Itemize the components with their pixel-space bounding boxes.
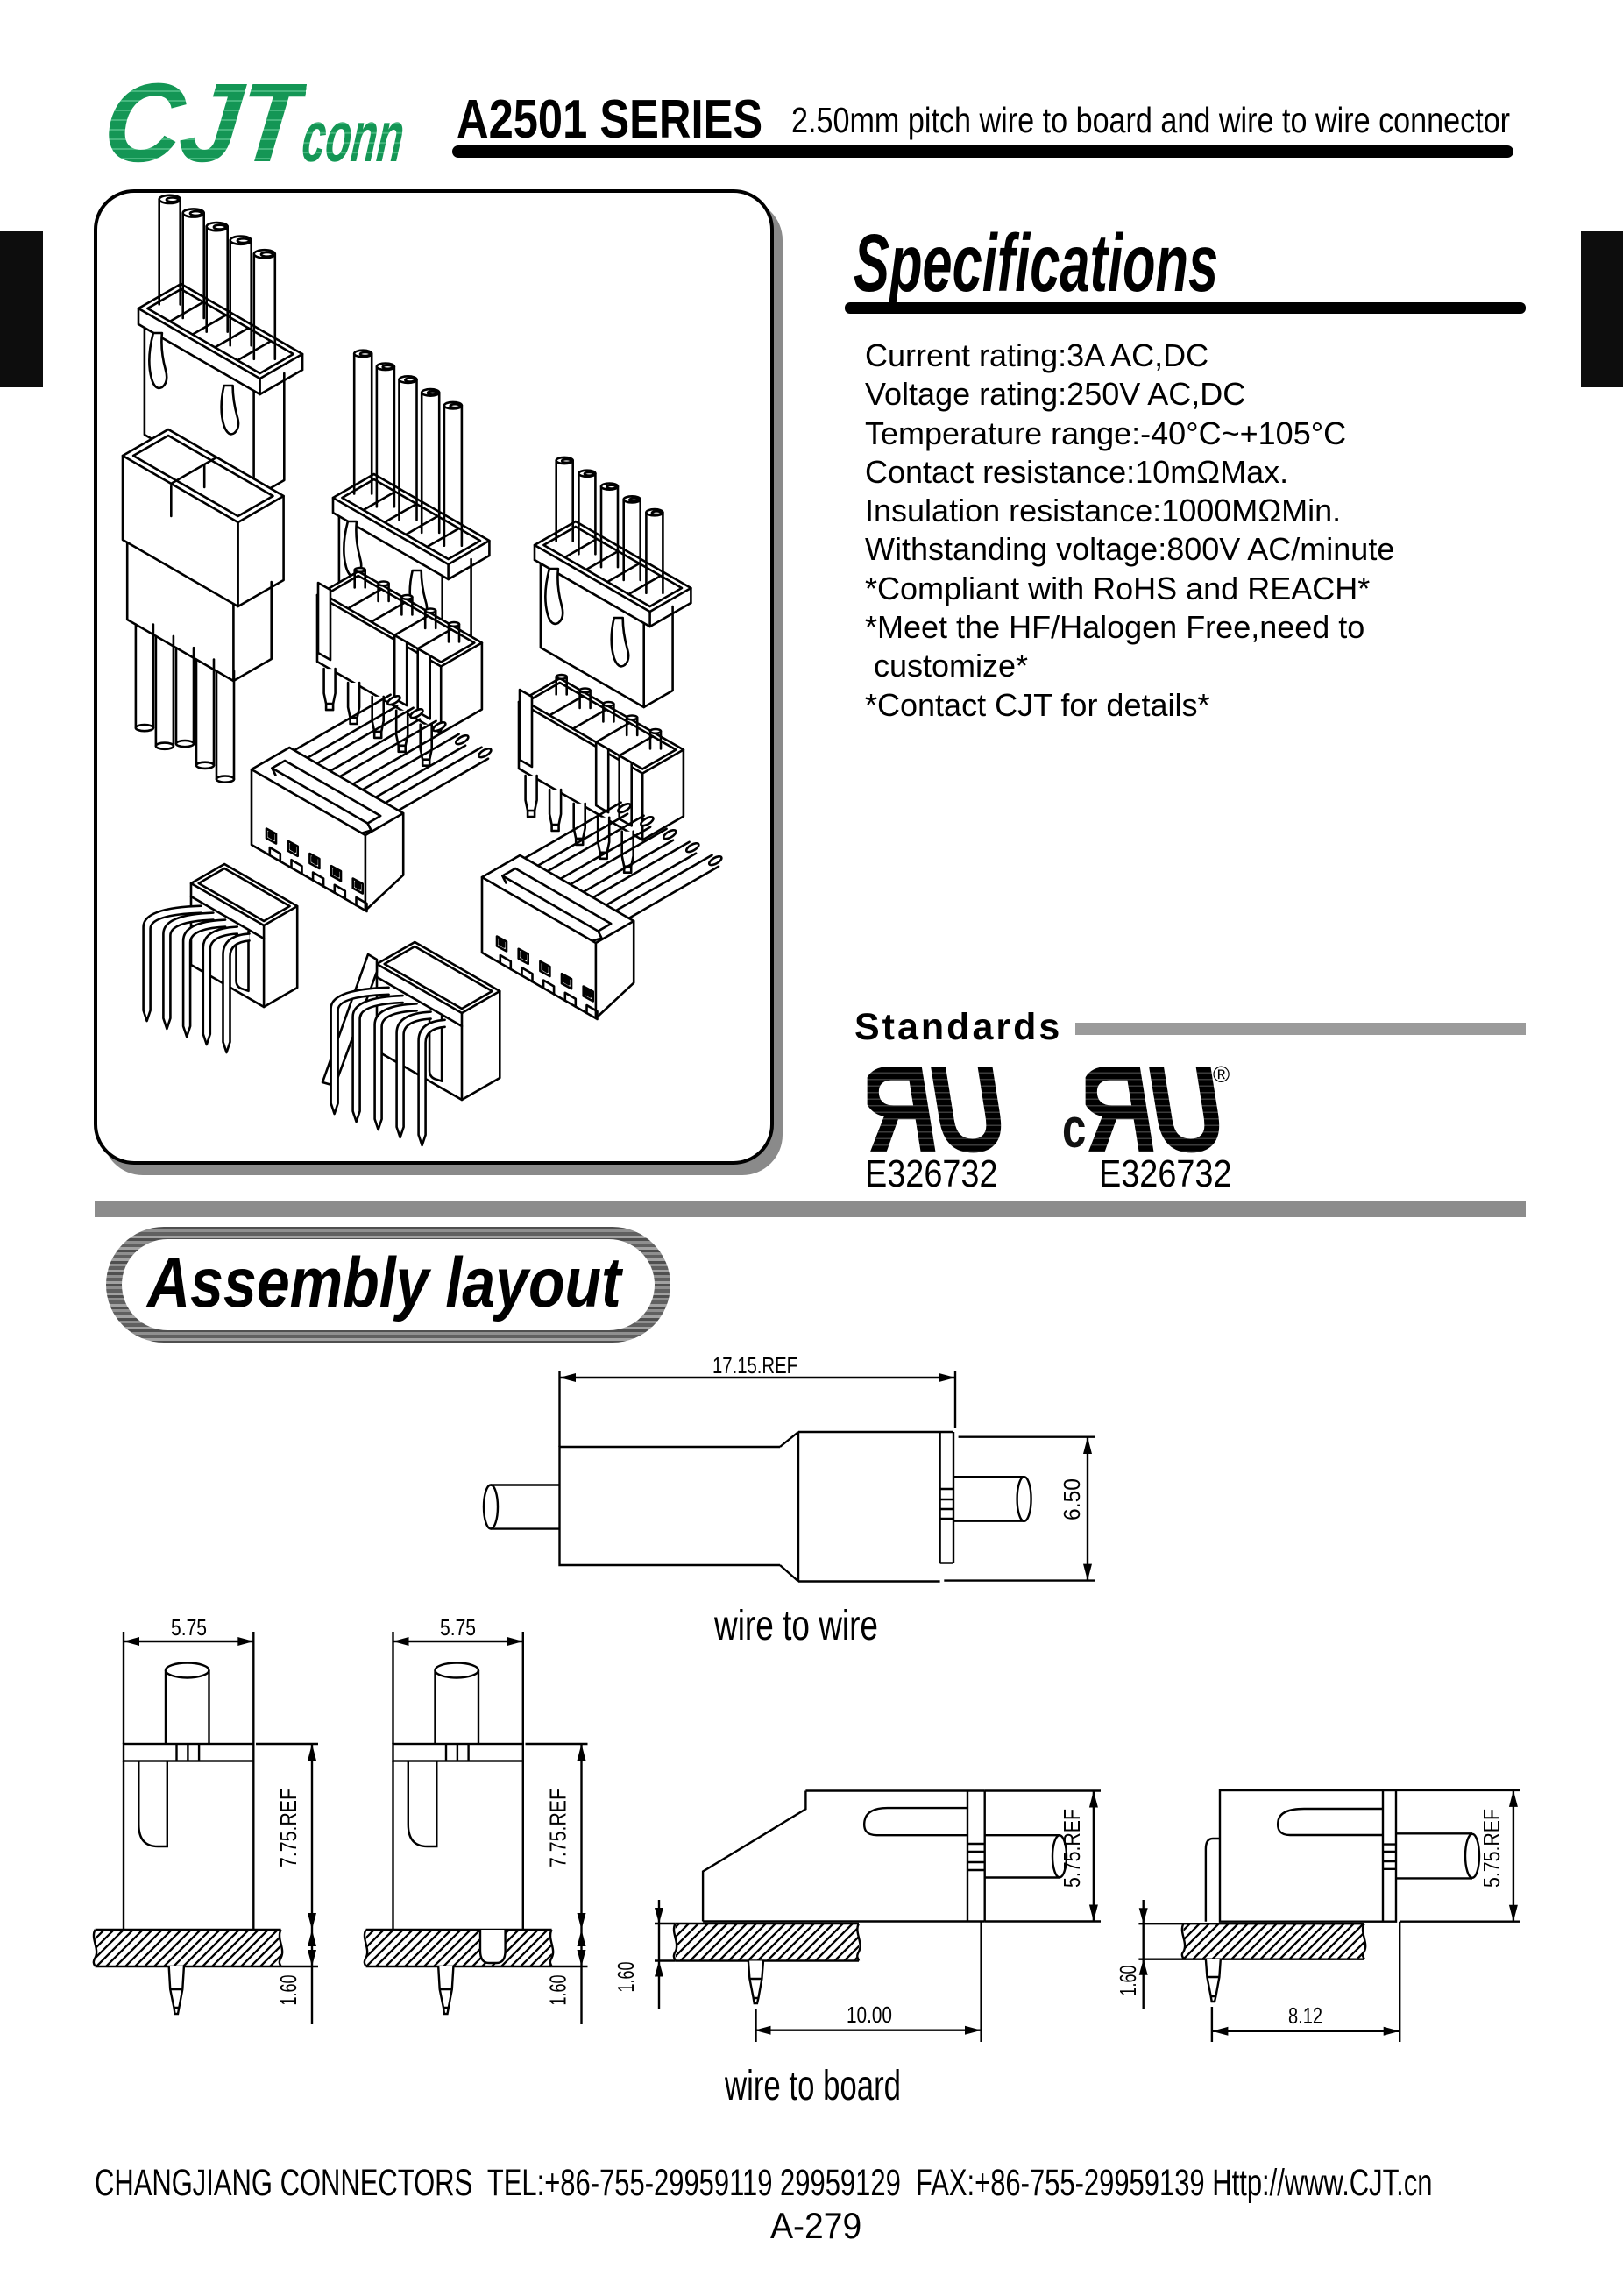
svg-text:7.75.REF: 7.75.REF — [545, 1789, 571, 1867]
svg-text:1.60: 1.60 — [275, 1975, 301, 2006]
svg-text:10.00: 10.00 — [847, 2002, 892, 2028]
svg-text:1.60: 1.60 — [545, 1975, 571, 2006]
svg-text:8.12: 8.12 — [1288, 2002, 1322, 2029]
svg-text:5.75.REF: 5.75.REF — [1059, 1809, 1085, 1888]
svg-text:1.60: 1.60 — [613, 1962, 639, 1993]
svg-text:wire to board: wire to board — [724, 2063, 901, 2109]
svg-text:6.50: 6.50 — [1059, 1478, 1085, 1520]
svg-text:5.75: 5.75 — [171, 1614, 207, 1641]
svg-text:wire to wire: wire to wire — [713, 1603, 878, 1649]
svg-text:7.75.REF: 7.75.REF — [275, 1789, 301, 1867]
svg-text:1.60: 1.60 — [1115, 1966, 1141, 1996]
svg-text:5.75: 5.75 — [440, 1614, 476, 1641]
svg-text:5.75.REF: 5.75.REF — [1478, 1809, 1505, 1888]
svg-text:17.15.REF: 17.15.REF — [712, 1352, 797, 1378]
